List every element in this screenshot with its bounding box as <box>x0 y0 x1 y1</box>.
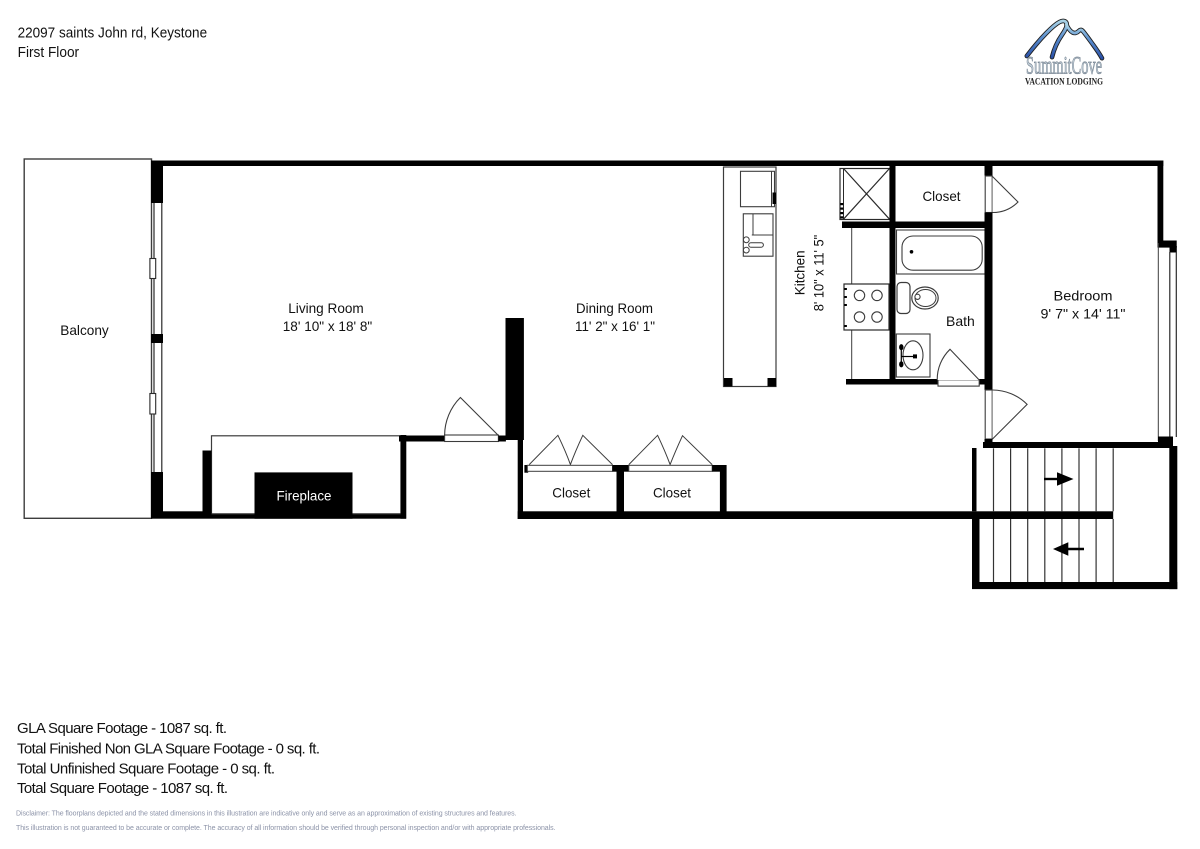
svg-text:VACATION LODGING: VACATION LODGING <box>1025 76 1103 86</box>
svg-text:Living Room: Living Room <box>288 300 364 316</box>
svg-text:Total Unfinished Square Footag: Total Unfinished Square Footage - 0 sq. … <box>17 761 275 778</box>
svg-text:Balcony: Balcony <box>60 322 109 338</box>
svg-text:18' 10" x 18' 8": 18' 10" x 18' 8" <box>283 318 373 334</box>
svg-text:Total Finished Non GLA Square: Total Finished Non GLA Square Footage - … <box>17 741 320 758</box>
svg-text:Closet: Closet <box>552 485 590 501</box>
svg-text:11' 2" x 16' 1": 11' 2" x 16' 1" <box>575 318 655 334</box>
svg-text:Kitchen: Kitchen <box>792 250 808 295</box>
svg-text:9' 7" x 14' 11": 9' 7" x 14' 11" <box>1041 306 1126 322</box>
svg-text:Bath: Bath <box>946 313 975 329</box>
svg-text:Bedroom: Bedroom <box>1054 288 1113 304</box>
svg-text:Closet: Closet <box>923 188 961 204</box>
svg-text:22097 saints John rd, Keystone: 22097 saints John rd, Keystone <box>18 25 208 42</box>
svg-text:Dining Room: Dining Room <box>576 300 653 316</box>
svg-text:Fireplace: Fireplace <box>277 488 332 504</box>
svg-text:This illustration is not guara: This illustration is not guaranteed to b… <box>16 825 556 832</box>
svg-text:Total Square Footage - 1087 sq: Total Square Footage - 1087 sq. ft. <box>17 780 228 797</box>
svg-text:Disclaimer: The floorplans dep: Disclaimer: The floorplans depicted and … <box>16 811 517 818</box>
svg-text:First Floor: First Floor <box>18 44 80 61</box>
svg-text:Closet: Closet <box>653 485 691 501</box>
svg-text:GLA Square Footage - 1087 sq.: GLA Square Footage - 1087 sq. ft. <box>17 720 227 737</box>
svg-text:8' 10" x 11' 5": 8' 10" x 11' 5" <box>811 235 827 312</box>
